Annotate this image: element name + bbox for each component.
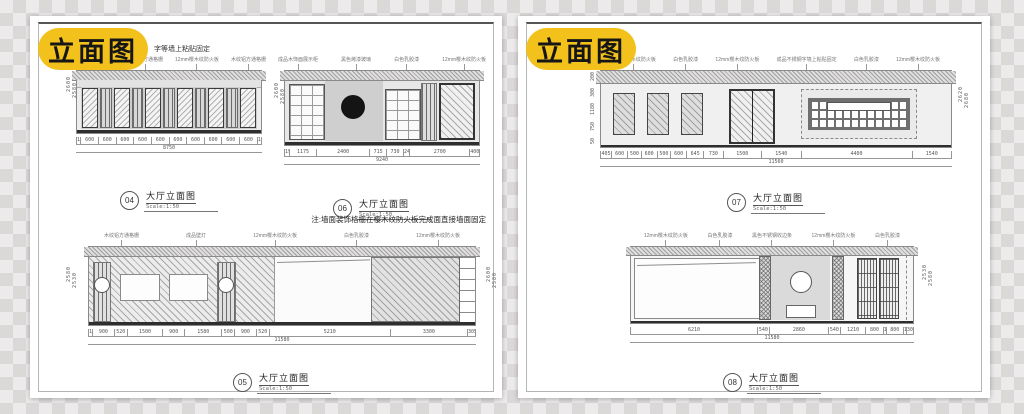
dimension-value: 600 [611, 151, 627, 159]
panel-row [81, 87, 257, 129]
drawing-title: 大厅立面图 [146, 189, 196, 204]
dimension-value: 1210 [840, 327, 866, 335]
double-door [729, 89, 775, 144]
material-annotation: 成品不锈钢字墙上粘贴固定 [777, 57, 837, 70]
material-annotation: 木纹铝方通格栅 [104, 233, 139, 246]
dimension-row: 190117524007157302402700400 [284, 149, 480, 157]
dimension-value: 900 [92, 329, 114, 337]
drawing-title-block: 04 大厅立面图 Scale:1:50 [120, 189, 218, 212]
glass-panel [208, 88, 224, 128]
wall-opening [169, 274, 208, 301]
material-annotation: 12mm樱木纹防火板 [442, 57, 486, 70]
elevation-drawing-04: 12mm樱木纹防火板木纹铝方通格栅12mm樱木纹防火板木纹铝方通格栅 2600 … [64, 52, 274, 214]
vertical-dimension-value: 50 [590, 138, 596, 144]
vertical-dimension-value: 1180 [590, 103, 596, 115]
drawing-title-text: 大厅立面图 Scale:1:50 [747, 371, 821, 394]
dimension-value: 405 [600, 151, 611, 159]
grille-panel [163, 88, 174, 128]
reception-desk-outline [786, 305, 816, 318]
vertical-dimension: 2580 [280, 88, 286, 104]
drawing-scale: Scale:1:50 [749, 386, 799, 392]
dimension-value: 600 [80, 137, 98, 145]
annotation-row: 木纹铝方通格栅成品壁灯12mm樱木纹防火板白色乳胶漆12mm樱木纹防火板 [96, 226, 468, 246]
dimension-value: 645 [686, 151, 703, 159]
material-annotation: 白色乳胶漆 [707, 233, 732, 246]
glass-panel [240, 88, 256, 128]
hatched-pier [832, 256, 844, 320]
dimension-row: 621054028605401210800100800100300 [630, 327, 914, 335]
hatched-wall-panel [647, 93, 669, 135]
dimension-value: 600 [98, 137, 116, 145]
dimension-value: 300 [906, 327, 914, 335]
dimension-total: 11580 [630, 335, 914, 343]
material-annotation: 白色乳胶漆 [344, 233, 369, 246]
louver-panel [879, 258, 899, 319]
dimension-value: 5210 [269, 329, 390, 337]
dimension-row: 1309005201500900158050090052052103300305 [88, 329, 476, 337]
material-annotation: 黑色烤漆玻璃 [341, 57, 371, 70]
dimension-value: 600 [670, 151, 686, 159]
display-shelf-center [385, 89, 421, 140]
grille-strip [421, 83, 437, 141]
dimension-value: 3300 [390, 329, 467, 337]
vertical-dimension: 2580 [72, 82, 78, 98]
dimension-value: 120 [257, 137, 262, 145]
vertical-dimension-column: 200300118075050 [590, 72, 596, 144]
vertical-dimension: 2580 [928, 270, 934, 286]
glass-panel [114, 88, 130, 128]
glass-panel [82, 88, 98, 128]
dimension-row: 4056005006005006006457301500154044001540 [600, 151, 952, 159]
dimension-value: 1540 [912, 151, 953, 159]
dimension-value: 600 [151, 137, 169, 145]
material-annotation: 成品木饰面展示柜 [278, 57, 318, 70]
ceiling-band [596, 71, 956, 84]
drawing-scale: Scale:1:50 [259, 386, 309, 392]
ceiling-band [280, 71, 484, 81]
mirror-panel [274, 257, 373, 322]
mirror-panel [634, 258, 760, 319]
dimension-value: 800 [865, 327, 882, 335]
header-annotation: 字等墙上粘贴固定 [154, 44, 210, 54]
drawing-title: 大厅立面图 [749, 371, 799, 386]
hatched-wall-panel [613, 93, 635, 135]
dimension-value: 540 [828, 327, 840, 335]
glass-panel [145, 88, 161, 128]
dimension-value: 520 [114, 329, 127, 337]
material-annotation: 白色乳胶漆 [854, 57, 879, 70]
drawing-title-text: 大厅立面图 Scale:1:50 [751, 191, 825, 214]
material-annotation: 12mm樱木纹防火板 [416, 233, 460, 246]
sheet-left: 立面图 字等墙上粘贴固定 12mm樱木纹防火板木纹铝方通格栅12mm樱木纹防火板… [30, 16, 502, 398]
drawing-scale: Scale:1:50 [146, 204, 196, 210]
general-note: 注:墙面装饰格栅在樱木纹防火板完成面直接墙面固定 [311, 214, 486, 225]
dimension-value: 500 [627, 151, 641, 159]
dimension-value: 540 [757, 327, 769, 335]
wall-lamp-icon [94, 277, 110, 293]
drawing-title: 大厅立面图 [259, 371, 309, 386]
dimension-value: 900 [162, 329, 184, 337]
dimension-value: 1500 [723, 151, 762, 159]
dimension-value: 600 [169, 137, 187, 145]
drawing-number-badge: 04 [120, 191, 139, 210]
drawing-number-badge: 07 [727, 193, 746, 212]
drawing-number-badge: 08 [723, 373, 742, 392]
dimension-value: 500 [657, 151, 671, 159]
hatched-wall-panel [681, 93, 703, 135]
dimension-value: 800 [886, 327, 903, 335]
door-leaf [753, 91, 774, 142]
vertical-dimension: 2580 [492, 272, 498, 288]
signage-plaque [827, 102, 891, 111]
drawing-title-block: 07 大厅立面图 Scale:1:50 [727, 191, 825, 214]
base-line [77, 130, 261, 133]
elevation-drawing-06: 成品木饰面展示柜黑色烤漆玻璃白色乳胶漆12mm樱木纹防火板 2600 2580 … [270, 50, 494, 222]
dimension-value: 1580 [184, 329, 221, 337]
drawing-scale: Scale:1:50 [753, 206, 803, 212]
dimension-value: 600 [133, 137, 151, 145]
grille-panel [226, 88, 237, 128]
elevation-drawing-05: 木纹铝方通格栅成品壁灯12mm樱木纹防火板白色乳胶漆12mm樱木纹防火板 258… [56, 226, 508, 394]
sheet-right: 立面图 12mm樱木纹防火板白色乳胶漆12mm樱木纹防火板成品不锈钢字墙上粘贴固… [518, 16, 990, 398]
dimension-total: 11560 [600, 159, 952, 167]
dimension-value: 4400 [801, 151, 912, 159]
dimension-total: 9240 [284, 157, 480, 165]
drawing-title-block: 08 大厅立面图 Scale:1:50 [723, 371, 821, 394]
dimension-value: 6210 [630, 327, 757, 335]
material-annotation: 成品壁灯 [186, 233, 206, 246]
base-line [631, 321, 913, 323]
material-annotation: 12mm樱木纹防火板 [253, 233, 297, 246]
elevation-drawing-07: 12mm樱木纹防火板白色乳胶漆12mm樱木纹防火板成品不锈钢字墙上粘贴固定白色乳… [574, 42, 978, 214]
dimension-value: 500 [221, 329, 234, 337]
grille-panel [132, 88, 143, 128]
dimension-value: 2860 [769, 327, 828, 335]
material-annotation: 12mm樱木纹防火板 [812, 233, 856, 246]
material-annotation: 12mm樱木纹防火板 [644, 233, 688, 246]
material-annotation: 12mm樱木纹防火板 [175, 57, 219, 70]
end-shelf-column [459, 257, 475, 322]
dimension-total: 11580 [88, 337, 476, 345]
annotation-row: 12mm樱木纹防火板白色乳胶漆黑色不锈钢收边条12mm樱木纹防火板白色乳胶漆 [636, 222, 908, 246]
elevation-badge: 立面图 [38, 28, 148, 70]
sloped-edge-line [637, 262, 756, 266]
hatched-pier [759, 256, 771, 320]
dimension-value: 600 [239, 137, 257, 145]
vertical-dimension: 2530 [72, 272, 78, 288]
hatched-wall-left [89, 257, 274, 322]
grille-panel [100, 88, 111, 128]
drawing-number-badge: 05 [233, 373, 252, 392]
drawing-title: 大厅立面图 [753, 191, 803, 206]
display-shelf-left [289, 84, 325, 140]
dimension-value: 305 [467, 329, 476, 337]
drawing-title-text: 大厅立面图 Scale:1:50 [144, 189, 218, 212]
dimension-value: 520 [256, 329, 269, 337]
dimension-value: 2700 [409, 149, 469, 157]
dimension-value: 1500 [127, 329, 163, 337]
louver-panel [857, 258, 877, 319]
dimension-value: 600 [204, 137, 222, 145]
material-annotation: 12mm樱木纹防火板 [715, 57, 759, 70]
dimension-value: 600 [221, 137, 239, 145]
drawing-title-text: 大厅立面图 Scale:1:50 [257, 371, 331, 394]
vertical-dimension-value: 750 [590, 122, 596, 131]
base-line [285, 142, 479, 145]
dimension-total: 8750 [76, 145, 262, 153]
material-annotation: 木纹铝方通格栅 [231, 57, 266, 70]
hatched-wall-right [371, 257, 462, 322]
base-line [601, 145, 951, 147]
vertical-dimension-value: 200 [590, 72, 596, 81]
feature-wall-outline [801, 89, 917, 139]
sloped-edge-line [277, 260, 370, 264]
material-annotation: 12mm樱木纹防火板 [896, 57, 940, 70]
door-leaf [731, 91, 753, 142]
glass-panel [177, 88, 193, 128]
dimension-row: 120600600600600600600600600600600120 [76, 137, 262, 145]
ceiling-band [84, 247, 480, 257]
material-annotation: 白色乳胶漆 [673, 57, 698, 70]
material-annotation: 白色乳胶漆 [394, 57, 419, 70]
clock-wall-panel [771, 256, 830, 320]
drawing-title: 大厅立面图 [359, 197, 409, 212]
dimension-value: 400 [469, 149, 480, 157]
wall-elevation-07 [600, 70, 952, 148]
elevation-badge: 立面图 [526, 28, 636, 70]
dimension-value: 730 [386, 149, 403, 157]
dimension-value: 715 [369, 149, 386, 157]
vertical-dimension-value: 300 [590, 88, 596, 97]
hatched-feature-panel [439, 83, 475, 140]
drawing-title-block: 05 大厅立面图 Scale:1:50 [233, 371, 331, 394]
elevation-drawing-08: 12mm樱木纹防火板白色乳胶漆黑色不锈钢收边条12mm樱木纹防火板白色乳胶漆 2… [602, 222, 942, 394]
wall-elevation-08 [630, 246, 914, 324]
end-strip [906, 255, 913, 320]
wall-lamp-icon [218, 277, 234, 293]
ceiling-band [626, 247, 918, 256]
material-annotation: 黑色不锈钢收边条 [752, 233, 792, 246]
material-annotation: 白色乳胶漆 [875, 233, 900, 246]
wall-clock-icon [341, 95, 365, 119]
wall-elevation-04 [76, 70, 262, 134]
base-line [89, 322, 475, 325]
dimension-value: 2400 [316, 149, 369, 157]
grille-panel [195, 88, 206, 128]
wall-clock-icon [790, 271, 812, 293]
dimension-value: 600 [116, 137, 134, 145]
dimension-value: 1540 [761, 151, 801, 159]
annotation-row: 成品木饰面展示柜黑色烤漆玻璃白色乳胶漆12mm樱木纹防火板 [270, 50, 494, 70]
dimension-value: 1175 [289, 149, 316, 157]
dimension-value: 600 [186, 137, 204, 145]
annotation-row: 12mm樱木纹防火板白色乳胶漆12mm樱木纹防火板成品不锈钢字墙上粘贴固定白色乳… [604, 42, 948, 70]
wall-opening [120, 274, 159, 301]
dimension-value: 730 [703, 151, 722, 159]
dimension-value: 600 [641, 151, 657, 159]
wall-elevation-05 [88, 246, 476, 326]
dimension-value: 900 [234, 329, 256, 337]
vertical-dimension: 2680 [964, 92, 970, 108]
wall-elevation-06 [284, 70, 480, 146]
